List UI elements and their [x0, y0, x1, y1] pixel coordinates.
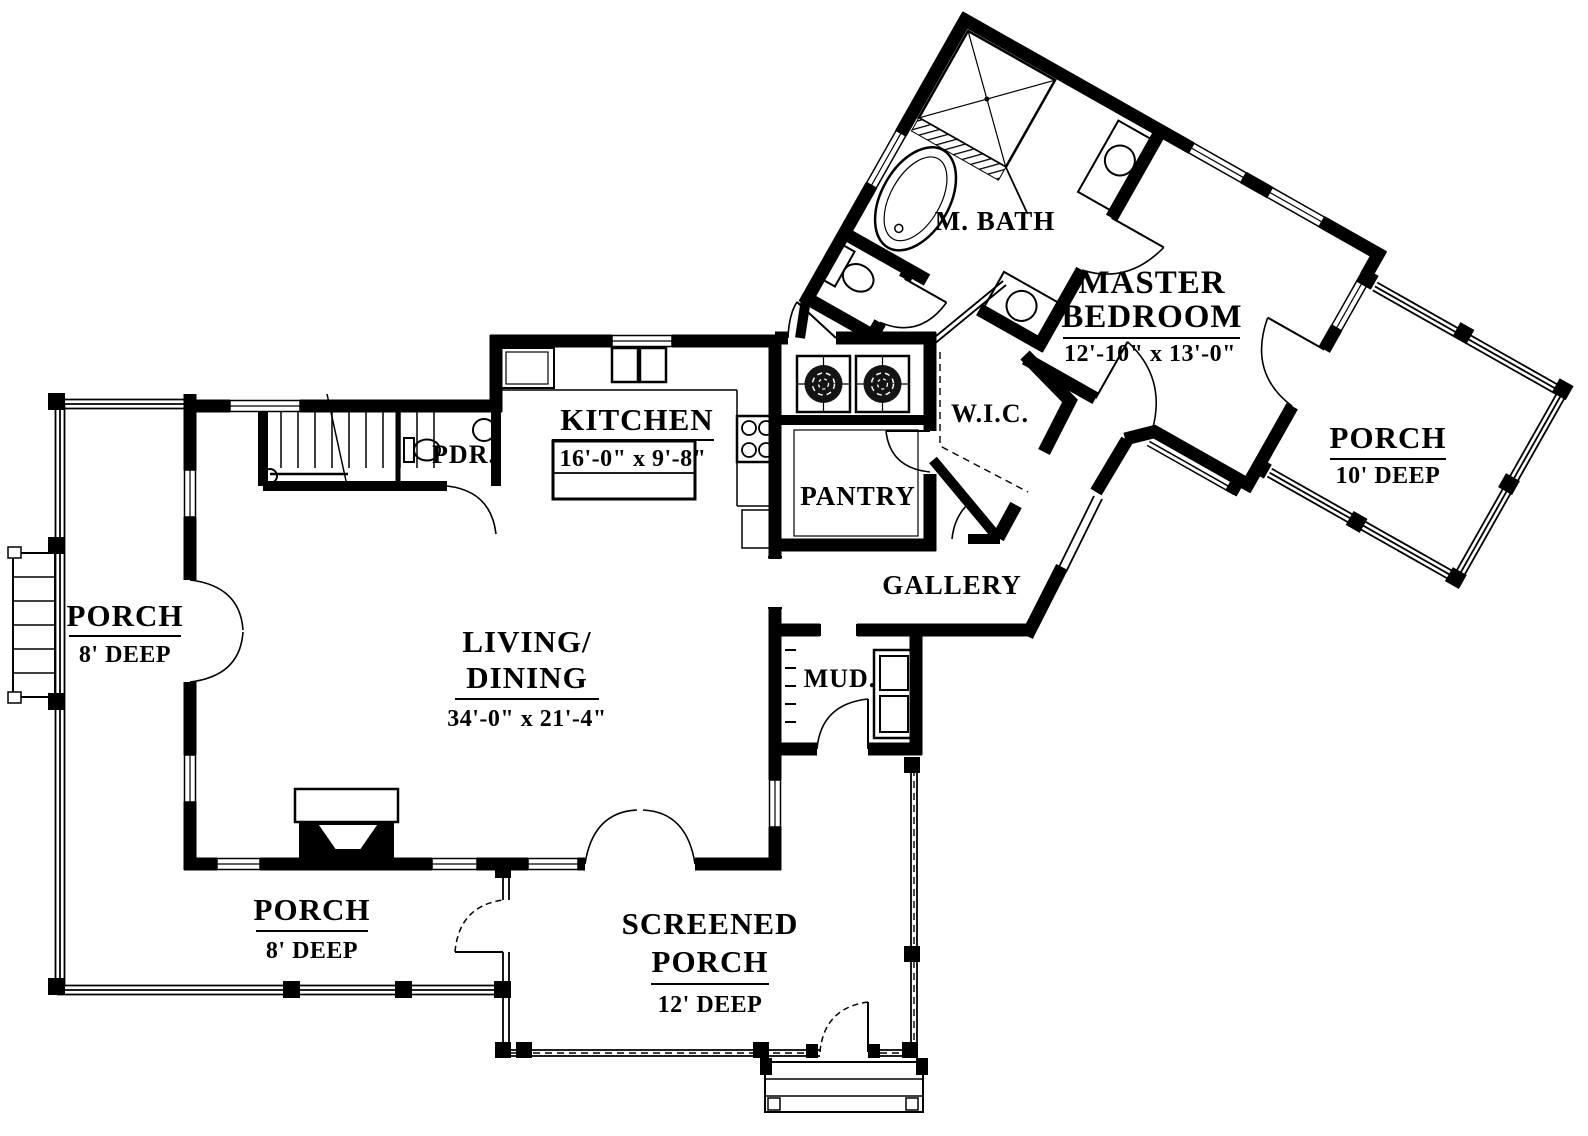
kitchen: KITCHEN 16'-0" x 9'-8": [490, 335, 781, 551]
washer: [797, 356, 850, 412]
kitchen-label: KITCHEN: [560, 402, 713, 437]
porch-master-dims: 10' DEEP: [1336, 463, 1441, 489]
porch-left-steps: [8, 547, 55, 703]
porch-post: [48, 537, 65, 554]
porch-bottom-dims: 8' DEEP: [266, 938, 358, 964]
wic-label: W.I.C.: [951, 399, 1029, 428]
gallery-se-wall: [1027, 431, 1157, 636]
refrigerator: [500, 348, 554, 388]
porch-bottom-label: PORCH: [254, 892, 371, 927]
porch-left-west-railing: [56, 397, 65, 987]
sink-basin: [640, 348, 666, 382]
porch-left-label: PORCH: [67, 598, 184, 633]
pdr-door-swing: [447, 486, 496, 534]
porch-post: [48, 978, 65, 995]
pantry-door-swing: [886, 431, 930, 472]
mud-door-swing: [817, 699, 868, 749]
corridor-door-swing: [952, 506, 966, 539]
living-label-2: DINING: [466, 660, 587, 695]
french-doors-west: [190, 580, 243, 682]
porch-post: [48, 393, 65, 410]
porch-left-dims: 8' DEEP: [79, 642, 171, 668]
porch-post: [806, 1044, 818, 1058]
sink-basin: [612, 348, 638, 382]
porch-left-top-railing: [55, 400, 184, 409]
screen-door-swing: [455, 900, 503, 952]
screened-porch-label-1: SCREENED: [622, 906, 799, 941]
pantry: PANTRY: [775, 420, 936, 551]
cased-opening-jambs: [768, 557, 782, 608]
master-bedroom-dims: 12'-10" x 13'-0": [1064, 341, 1236, 367]
master-bath-label: M. BATH: [935, 206, 1056, 236]
kitchen-dims: 16'-0" x 9'-8": [560, 446, 707, 472]
shower: [904, 31, 1092, 214]
pantry-label: PANTRY: [800, 481, 916, 511]
porch-post: [902, 1042, 918, 1058]
pdr-label: PDR.: [432, 440, 496, 469]
porch-post: [395, 981, 412, 998]
porch-post: [48, 693, 65, 710]
porch-door-leaf: [1268, 318, 1325, 350]
porch-post: [283, 981, 300, 998]
porch-bottom-railing: [57, 986, 503, 995]
powder-room: PDR.: [398, 412, 496, 534]
fireplace: [295, 789, 398, 864]
living-dims: 34'-0" x 21'-4": [447, 706, 606, 732]
vestibule-wall: [800, 299, 806, 338]
bath-door-leaf: [1112, 218, 1164, 248]
porch-post: [495, 1042, 511, 1058]
master-bedroom-label-2: BEDROOM: [1061, 299, 1242, 335]
screen-door-swing: [820, 1002, 868, 1052]
porch-post: [868, 1044, 880, 1058]
screened-porch-label-2: PORCH: [652, 944, 769, 979]
mud-room: MUD.: [775, 624, 1033, 755]
refrigerator-inner: [506, 352, 548, 384]
screen-wall-west: [503, 870, 509, 1048]
porch-bottom: PORCH 8' DEEP: [57, 892, 511, 998]
porch-post: [904, 757, 920, 773]
master-bedroom-label-1: MASTER: [1078, 265, 1225, 301]
coat-hooks: [785, 650, 796, 722]
porch-post: [904, 946, 920, 962]
porch-post: [753, 1042, 769, 1058]
gallery-window: [1058, 496, 1102, 572]
french-doors-south: [585, 810, 695, 864]
gallery-label: GALLERY: [882, 570, 1022, 600]
living-label-1: LIVING/: [462, 624, 591, 659]
mud-opening-jambs: [820, 624, 857, 636]
porch-post: [516, 1042, 532, 1058]
floor-plan-canvas: PORCH 8' DEEP PORCH 8' DEEP: [0, 0, 1588, 1136]
porch-door-swing: [1236, 318, 1325, 407]
toilet-tank: [404, 438, 414, 462]
screened-porch: SCREENED PORCH 12' DEEP: [495, 757, 928, 1112]
screened-porch-dims: 12' DEEP: [658, 992, 763, 1018]
entry-door-swing: [788, 302, 797, 338]
porch-master-label: PORCH: [1330, 420, 1447, 455]
porch-left: PORCH 8' DEEP: [8, 393, 184, 995]
mud-label: MUD.: [804, 664, 877, 693]
dryer: [856, 356, 909, 412]
exterior-steps: [760, 1058, 928, 1112]
stair-treads: [281, 412, 434, 468]
floor-plan-drawing: PORCH 8' DEEP PORCH 8' DEEP: [0, 0, 1588, 1136]
cubbies: [874, 650, 914, 738]
